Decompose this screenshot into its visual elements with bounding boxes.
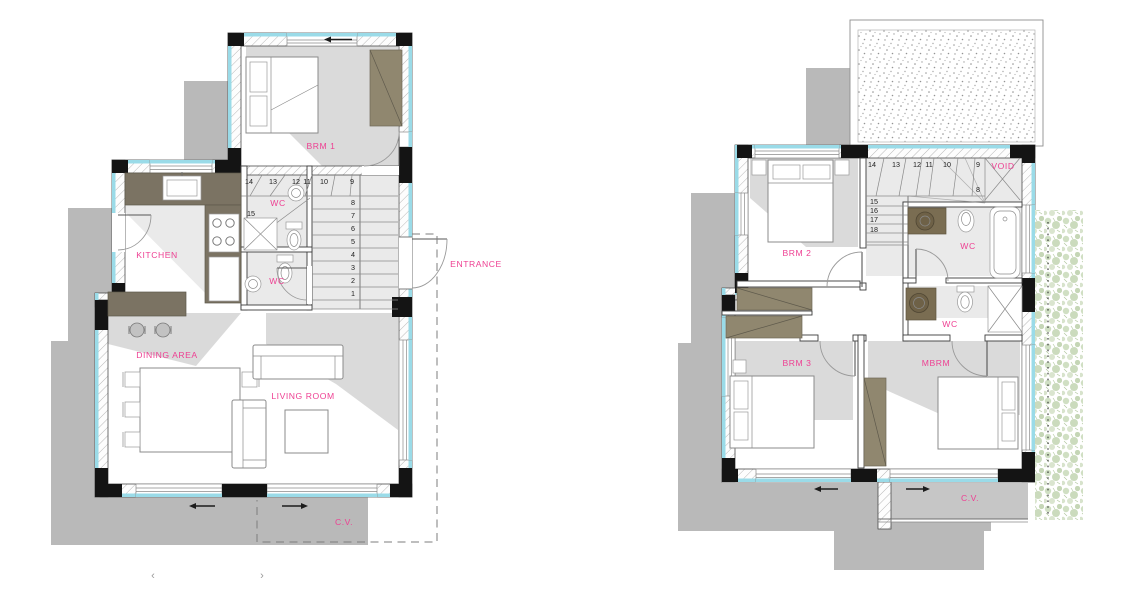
room-label-living: LIVING ROOM (271, 391, 334, 401)
breakfast-bar (108, 292, 186, 316)
toilet (958, 210, 974, 232)
coffee-table (285, 410, 328, 453)
stair-number: 6 (351, 224, 355, 233)
bed-double (730, 376, 814, 448)
stair-number: 5 (351, 237, 355, 246)
room-label-wc-top: WC (960, 241, 975, 251)
stair-number: 3 (351, 263, 355, 272)
stair-number: 15 (247, 209, 255, 218)
stair-number: 9 (976, 160, 980, 169)
sofa-vertical (232, 400, 266, 468)
pager-next-chevron[interactable]: › (260, 570, 264, 582)
entrance-door (399, 237, 447, 289)
stair-number: 12 (292, 177, 300, 186)
stair-number: 10 (943, 160, 951, 169)
bed-double (938, 377, 1018, 449)
brm2-window-west (735, 193, 748, 235)
mbrm-window-east (1022, 345, 1035, 450)
bathtub (990, 207, 1020, 278)
stove (209, 214, 239, 252)
stair-number: 16 (870, 206, 878, 215)
bed-double (246, 57, 318, 133)
stair-number: 8 (976, 185, 980, 194)
room-label-cv: C.V. (961, 493, 979, 503)
living-window-east (399, 340, 412, 460)
bed-double (768, 160, 833, 242)
room-label-wc-top: WC (270, 198, 285, 208)
ground-floor-plan: 14 13 12 11 10 9 15 8 7 6 5 4 3 2 1 (51, 33, 502, 545)
room-label-void: VOID (991, 161, 1014, 171)
stair-number: 10 (320, 177, 328, 186)
pager-prev-chevron[interactable]: ‹ (151, 570, 155, 582)
brm1-window-east (399, 132, 412, 147)
brm2-window-north (755, 145, 839, 158)
shower (244, 218, 277, 250)
room-label-brm3: BRM 3 (782, 358, 811, 368)
wardrobe (370, 50, 402, 126)
room-label-entrance: ENTRANCE (450, 259, 502, 269)
brm3-window-south (756, 469, 851, 482)
greenery-strip (1035, 210, 1083, 520)
room-label-wc-bottom: WC (269, 276, 284, 286)
wardrobe (864, 378, 886, 466)
wc-window-east (1022, 205, 1035, 273)
stair-number: 1 (351, 289, 355, 298)
shower (988, 286, 1022, 332)
room-label-dining: DINING AREA (136, 350, 197, 360)
stair-number: 17 (870, 215, 878, 224)
floor-plan-image: 14 13 12 11 10 9 15 8 7 6 5 4 3 2 1 (0, 0, 1127, 611)
stair-number: 11 (303, 177, 310, 186)
toilet-upper (286, 222, 302, 250)
toilet (958, 292, 973, 312)
stair-number: 2 (351, 276, 355, 285)
room-label-kitchen: KITCHEN (136, 250, 178, 260)
kitchen-window (150, 160, 212, 173)
stair-number: 4 (351, 250, 355, 259)
dining-window (136, 484, 222, 497)
stair-number: 18 (870, 225, 878, 234)
stair-number: 14 (245, 177, 253, 186)
room-label-brm1: BRM 1 (306, 141, 335, 151)
stair-number: 13 (892, 160, 900, 169)
mbrm-window-south (890, 469, 998, 482)
washbasin (288, 185, 304, 201)
first-floor-plan: 14 13 12 11 10 9 8 15 16 17 18 (678, 20, 1083, 570)
living-window-south (267, 484, 377, 497)
sofa-horizontal (253, 345, 343, 379)
stair-number: 13 (269, 177, 277, 186)
washbasin (245, 276, 261, 292)
kitchen-cabinet (209, 257, 239, 301)
roof-terrace (850, 20, 1043, 146)
room-label-cv: C.V. (335, 517, 353, 527)
room-label-wc-mid: WC (942, 319, 957, 329)
floor-plans-canvas: 14 13 12 11 10 9 15 8 7 6 5 4 3 2 1 (0, 0, 1127, 611)
stair-number: 11 (925, 160, 932, 169)
stair-number: 12 (913, 160, 921, 169)
stair-number: 8 (351, 198, 355, 207)
stair-number: 9 (350, 177, 354, 186)
room-label-brm2: BRM 2 (782, 248, 811, 258)
stair-number: 14 (868, 160, 876, 169)
dining-table (140, 368, 240, 452)
stair-number: 15 (870, 197, 878, 206)
room-label-mbrm: MBRM (922, 358, 950, 368)
stair-number: 7 (351, 211, 355, 220)
